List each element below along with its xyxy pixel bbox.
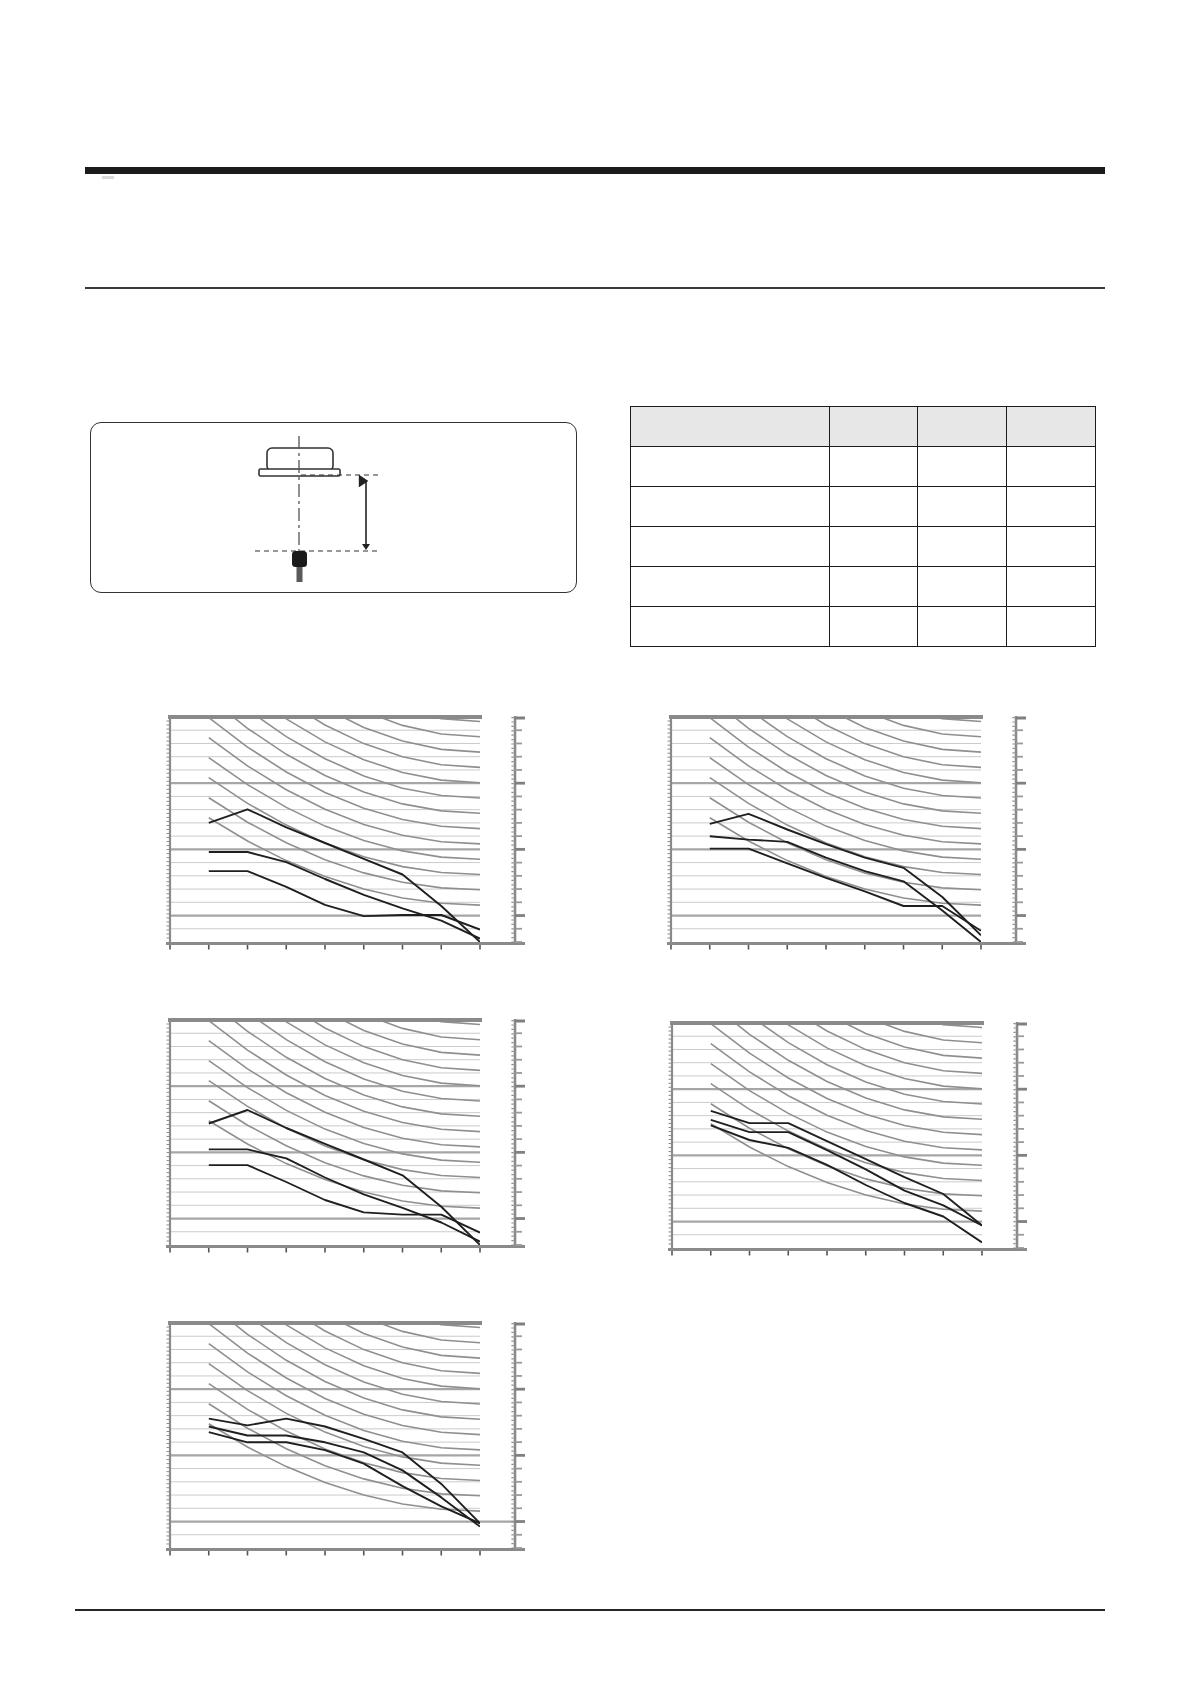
noise-chart-bottom-left (162, 1317, 530, 1563)
nc-reference-curve (209, 1014, 480, 1116)
measurement-setup-panel (90, 422, 577, 593)
nc-reference-curve (710, 711, 981, 767)
nc-reference-curve (209, 1344, 480, 1450)
table-cell (830, 527, 918, 567)
nc-reference-curve (710, 711, 981, 813)
measured-line-1 (209, 1110, 480, 1245)
nc-reference-curve (710, 711, 981, 737)
table-cell (918, 447, 1007, 487)
manual-page (0, 0, 1191, 1684)
nc-reference-curve (711, 1017, 982, 1119)
nc-reference-curve (209, 758, 480, 860)
microphone-icon (292, 551, 307, 582)
nc-reference-curve (209, 1317, 480, 1389)
table-header (631, 407, 1096, 447)
nc-reference-curve (209, 1364, 480, 1466)
table-cell (918, 487, 1007, 527)
table-cell (1007, 447, 1096, 487)
measured-line-2 (209, 1149, 480, 1241)
table-cell (830, 487, 918, 527)
nc-reference-curve (710, 818, 981, 905)
nc-reference-curve (711, 1017, 982, 1073)
table-cell (918, 527, 1007, 567)
table-row (631, 607, 1096, 647)
nc-reference-curve (209, 711, 480, 737)
table-header-cell (918, 407, 1007, 447)
nc-reference-curve (209, 1121, 480, 1208)
table-cell (1007, 567, 1096, 607)
nc-reference-curve (209, 711, 480, 767)
table-cell (918, 567, 1007, 607)
nc-reference-curve (710, 711, 981, 783)
table-cell (1007, 607, 1096, 647)
nc-reference-curve (710, 758, 981, 860)
table-cell (1007, 487, 1096, 527)
nc-reference-curve (209, 1317, 480, 1343)
nc-reference-curve (209, 1317, 480, 1373)
table-cell (918, 607, 1007, 647)
noise-level-chart-top-right (663, 711, 1031, 957)
noise-chart-top-left (162, 711, 530, 957)
print-artifact (102, 176, 114, 179)
noise-chart-mid-left (162, 1014, 530, 1260)
measured-line-1 (209, 1419, 480, 1524)
measured-line-3 (711, 1125, 982, 1242)
footer-rule (75, 1609, 1105, 1611)
measured-line-3 (710, 849, 981, 931)
table-row (631, 567, 1096, 607)
table-row (631, 487, 1096, 527)
nc-reference-curve (209, 1014, 480, 1086)
table-cell (631, 607, 830, 647)
noise-chart-mid-right (664, 1017, 1032, 1263)
nc-reference-curve (209, 1041, 480, 1147)
measured-line-1 (710, 814, 981, 936)
table-body (631, 447, 1096, 647)
header-thin-rule (85, 287, 1105, 289)
dimension-arrowhead (362, 544, 370, 550)
nc-reference-curve (209, 1014, 480, 1040)
nc-reference-curve (711, 1044, 982, 1150)
table-header-cell (830, 407, 918, 447)
noise-level-chart-bottom-left (162, 1317, 530, 1563)
table-header-cell (631, 407, 830, 447)
table-row (631, 527, 1096, 567)
nc-reference-curve (711, 1017, 982, 1043)
table-header-cell (1007, 407, 1096, 447)
table-cell (830, 567, 918, 607)
table-cell (631, 567, 830, 607)
nc-reference-curve (209, 1424, 480, 1511)
nc-reference-curve (710, 738, 981, 844)
noise-level-chart-mid-right (664, 1017, 1032, 1263)
table-cell (631, 527, 830, 567)
nc-reference-curve (711, 1017, 982, 1089)
noise-level-chart-mid-left (162, 1014, 530, 1260)
nc-reference-curve (209, 1317, 480, 1419)
table-cell (1007, 527, 1096, 567)
nc-reference-curve (711, 1124, 982, 1211)
ceiling-unit-microphone-diagram (91, 423, 575, 591)
measured-line-2 (209, 852, 480, 939)
sound-level-table (630, 406, 1096, 647)
table-cell (830, 607, 918, 647)
noise-chart-top-right (663, 711, 1031, 957)
table-cell (830, 447, 918, 487)
table-cell (631, 487, 830, 527)
table-row (631, 447, 1096, 487)
nc-reference-curve (209, 738, 480, 844)
header-thick-rule (85, 167, 1105, 174)
nc-reference-curve (209, 818, 480, 905)
nc-reference-curve (209, 711, 480, 813)
nc-reference-curve (209, 1014, 480, 1070)
nc-reference-curve (209, 711, 480, 783)
noise-level-chart-top-left (162, 711, 530, 957)
table-cell (631, 447, 830, 487)
